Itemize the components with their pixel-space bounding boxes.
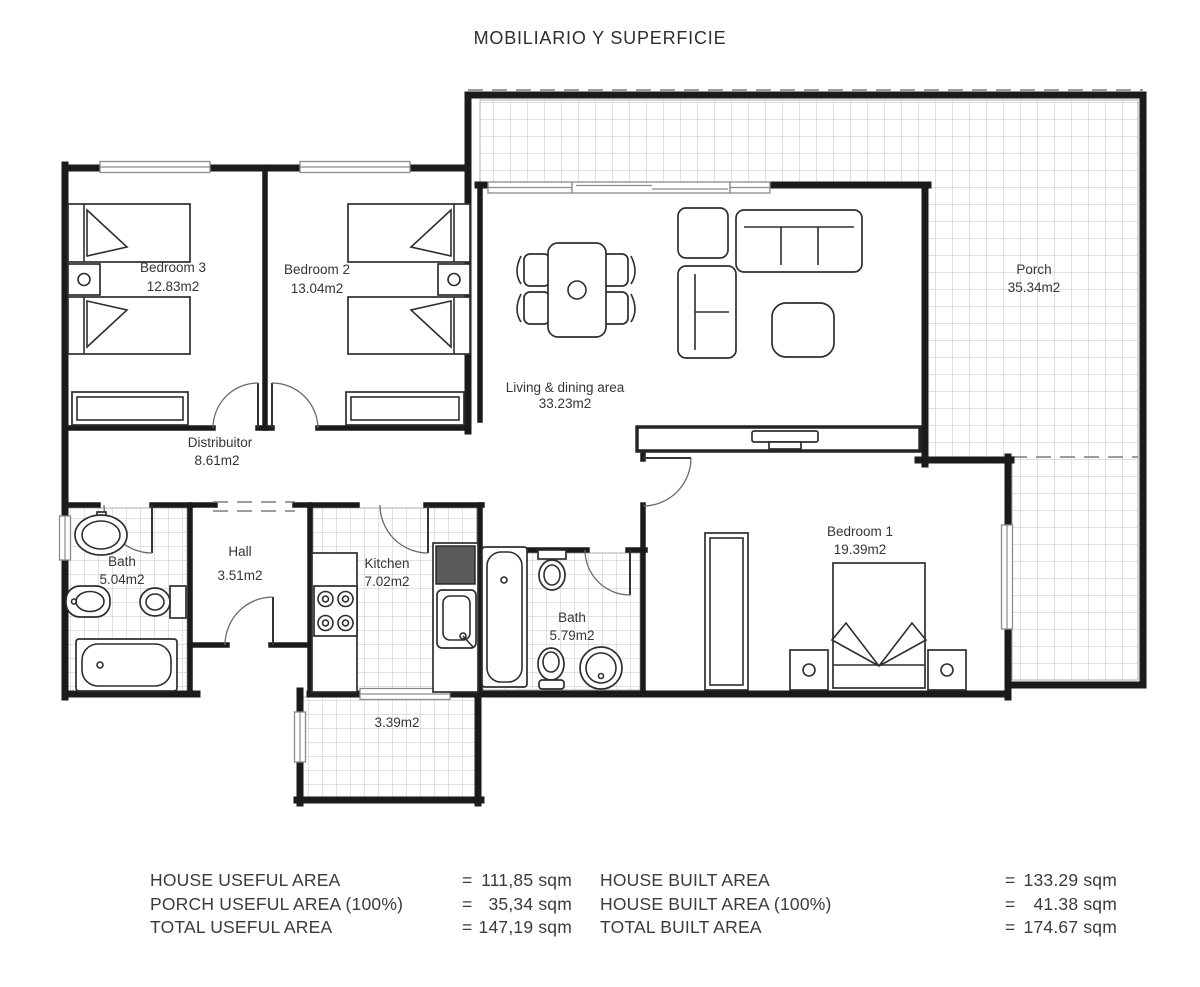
nightstand-icon: [438, 264, 470, 295]
nightstand-icon: [790, 650, 828, 690]
bedroom1-window: [1002, 525, 1013, 629]
floor-plan: Bedroom 3 12.83m2 Bedroom 2 13.04m2 Livi…: [0, 0, 1200, 987]
terrace-window: [295, 712, 306, 762]
double-bed-icon: [833, 563, 925, 688]
summary-value: =147,19 sqm: [462, 916, 572, 940]
bedroom3-window: [100, 162, 210, 173]
kitchen-area: 7.02m2: [364, 574, 409, 589]
porch-label: Porch: [1016, 262, 1051, 277]
hall-open-passage: [213, 502, 295, 511]
distributor-label: Distribuitor: [188, 435, 253, 450]
summary-label: PORCH USEFUL AREA (100%): [150, 893, 462, 917]
bedroom1-area: 19.39m2: [834, 542, 887, 557]
useful-area-table: HOUSE USEFUL AREA =111,85 sqm PORCH USEF…: [150, 869, 572, 940]
living-furniture: [517, 208, 862, 449]
summary-label: HOUSE BUILT AREA (100%): [600, 893, 1005, 917]
living-label: Living & dining area: [506, 380, 625, 395]
bedroom2-window: [300, 162, 410, 173]
hall-label: Hall: [228, 544, 251, 559]
summary-label: TOTAL BUILT AREA: [600, 916, 1005, 940]
nightstand-icon: [68, 264, 100, 295]
living-sliding-door: [572, 182, 730, 193]
side-table-icon: [678, 208, 728, 258]
bedroom2-label: Bedroom 2: [284, 262, 350, 277]
living-area: 33.23m2: [539, 396, 592, 411]
kitchen-label: Kitchen: [364, 556, 409, 571]
distributor-area: 8.61m2: [194, 453, 239, 468]
bath1-area: 5.04m2: [99, 572, 144, 587]
bedroom2-furniture: [346, 204, 470, 425]
fridge-icon: [436, 546, 475, 584]
coffee-table-icon: [772, 303, 834, 357]
bath2-label: Bath: [558, 610, 586, 625]
bedroom2-area: 13.04m2: [291, 281, 344, 296]
built-area-table: HOUSE BUILT AREA =133.29 sqm HOUSE BUILT…: [600, 869, 1117, 940]
toilet-tank-icon: [170, 586, 186, 618]
summary-value: =174.67 sqm: [1005, 916, 1117, 940]
sofa-3seat-icon: [736, 210, 862, 272]
toilet-tank-icon: [538, 550, 566, 559]
summary-label: TOTAL USEFUL AREA: [150, 916, 462, 940]
porch-area: 35.34m2: [1008, 280, 1061, 295]
tv-stand-icon: [769, 442, 801, 449]
entry-door: [225, 597, 273, 645]
bath1-label: Bath: [108, 554, 136, 569]
living-window-right: [730, 182, 770, 193]
bathtub-icon: [482, 547, 527, 687]
bathtub-icon: [76, 639, 177, 691]
tv-icon: [752, 431, 818, 442]
summary-value: =111,85 sqm: [462, 869, 572, 893]
bedroom3-area: 12.83m2: [147, 279, 200, 294]
bedroom2-door: [272, 383, 318, 428]
bedroom3-label: Bedroom 3: [140, 260, 206, 275]
summary-value: =41.38 sqm: [1005, 893, 1117, 917]
bath1-window: [60, 516, 71, 560]
bath2-area: 5.79m2: [549, 628, 594, 643]
terrace-floor: [303, 697, 475, 797]
toilet-icon: [140, 588, 170, 616]
bedroom3-furniture: [68, 204, 190, 425]
terrace-area: 3.39m2: [374, 715, 419, 730]
summary-label: HOUSE USEFUL AREA: [150, 869, 462, 893]
floor-plan-sheet: MOBILIARIO Y SUPERFICIE: [0, 0, 1200, 987]
living-window-left: [488, 182, 572, 193]
bedroom1-label: Bedroom 1: [827, 524, 893, 539]
hall-area: 3.51m2: [217, 568, 262, 583]
chair-icon: [524, 292, 550, 324]
summary-value: =133.29 sqm: [1005, 869, 1117, 893]
chair-icon: [524, 254, 550, 286]
wardrobe-icon: [705, 533, 748, 690]
summary-value: =35,34 sqm: [462, 893, 572, 917]
bedroom3-door: [213, 383, 258, 428]
summary-label: HOUSE BUILT AREA: [600, 869, 1005, 893]
area-summary: HOUSE USEFUL AREA =111,85 sqm PORCH USEF…: [0, 869, 1200, 940]
bedroom1-door: [643, 458, 691, 506]
dining-table-icon: [548, 243, 606, 337]
nightstand-icon: [928, 650, 966, 690]
